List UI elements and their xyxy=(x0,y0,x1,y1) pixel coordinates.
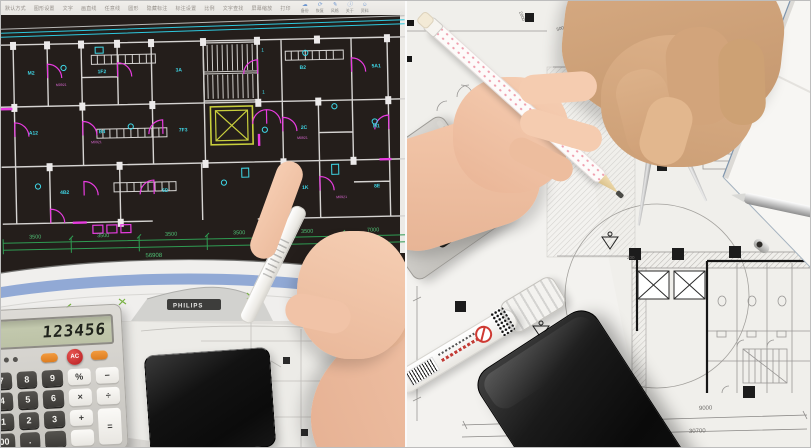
smartphone xyxy=(144,347,277,448)
svg-text:B2: B2 xyxy=(300,65,307,71)
svg-text:3500: 3500 xyxy=(97,233,109,239)
toolbar-icon-label: 关于 xyxy=(346,9,354,13)
drafting-compass xyxy=(407,1,811,448)
svg-text:2C: 2C xyxy=(301,125,308,131)
compass-leg xyxy=(634,102,662,226)
toolbar-item: 画直线 xyxy=(81,5,97,12)
compass-adjust-wheel xyxy=(673,147,686,160)
svg-text:M0921: M0921 xyxy=(336,195,347,199)
svg-text:5A1: 5A1 xyxy=(371,63,381,69)
svg-text:7F3: 7F3 xyxy=(179,127,188,133)
stair-mark: 1 xyxy=(262,90,265,96)
toolbar-item: 默认方式 xyxy=(5,5,26,12)
calc-key: − xyxy=(95,367,119,384)
toolbar-item: 文字查找 xyxy=(223,5,244,12)
photo-composite: 默认方式 图形设置 文字 画直线 任意线 圆形 隐藏标注 标注设置 比例 文字查… xyxy=(0,0,811,448)
toolbar-icon-label: 风格 xyxy=(331,9,339,13)
calculator-display: 123456 xyxy=(42,319,107,341)
toolbar-item: 图形设置 xyxy=(34,5,55,12)
svg-text:1F2: 1F2 xyxy=(98,69,107,75)
calc-key: 4 xyxy=(1,393,13,410)
calc-key: 8 xyxy=(16,371,37,388)
calc-orange-key xyxy=(41,353,58,363)
svg-text:6D: 6D xyxy=(162,188,169,194)
svg-text:3500: 3500 xyxy=(165,232,177,238)
toolbar-item: 标注设置 xyxy=(175,5,196,12)
toolbar-icon-label: 恢复 xyxy=(316,9,324,13)
calculator-keypad: 7 8 9 % − 4 5 6 × ÷ 1 2 3 + = 00 . xyxy=(1,367,122,448)
calc-key: 1 xyxy=(1,413,14,430)
right-photo-blueprints: 5400 9000 30700 2000 5000 200 0 0 1 4 xyxy=(407,1,811,448)
calc-key: . xyxy=(19,432,40,448)
calc-key: 7 xyxy=(1,372,12,389)
calc-orange-key xyxy=(91,350,108,360)
svg-text:3500: 3500 xyxy=(301,229,313,235)
calc-key: 3 xyxy=(44,410,65,427)
monitor-screen: 1 1 xyxy=(1,15,407,321)
svg-text:1K: 1K xyxy=(302,185,309,191)
calc-equals-key: = xyxy=(97,407,122,445)
svg-text:8E: 8E xyxy=(374,183,381,189)
cad-toolbar: 默认方式 图形设置 文字 画直线 任意线 圆形 隐藏标注 标注设置 比例 文字查… xyxy=(1,1,407,15)
svg-text:7000: 7000 xyxy=(367,227,379,233)
toolbar-item: 隐藏标注 xyxy=(147,5,168,12)
calc-key: 9 xyxy=(42,370,63,387)
svg-text:M1: M1 xyxy=(373,123,380,129)
calculator-lcd: 123456 xyxy=(1,314,114,350)
toolbar-item: 圆形 xyxy=(128,5,138,12)
compass-hinge xyxy=(648,95,668,115)
calc-key xyxy=(70,429,94,446)
svg-text:M2: M2 xyxy=(28,71,35,77)
svg-text:A12: A12 xyxy=(29,130,39,136)
calc-key: × xyxy=(68,388,92,405)
toolbar-icon-label: 备份 xyxy=(301,9,309,13)
calc-key: 5 xyxy=(17,391,38,408)
toolbar-item: 任意线 xyxy=(105,5,121,12)
svg-text:M0921: M0921 xyxy=(91,140,102,144)
toolbar-icon-label: 资料 xyxy=(361,9,369,13)
svg-text:M0921: M0921 xyxy=(56,83,67,87)
philips-logo: PHILIPS xyxy=(173,304,203,310)
calc-key xyxy=(45,430,66,447)
calc-key: 00 xyxy=(1,433,15,448)
svg-text:M0921: M0921 xyxy=(297,136,308,140)
calc-key: % xyxy=(67,368,91,385)
calc-small-key xyxy=(13,357,18,362)
calc-key: ÷ xyxy=(96,387,120,404)
svg-text:3500: 3500 xyxy=(233,230,245,236)
photo-divider xyxy=(405,1,407,448)
stair-mark: 1 xyxy=(261,48,264,54)
calc-key: + xyxy=(69,409,93,426)
toolbar-item: 屏幕缩放 xyxy=(252,5,273,12)
calc-ac-key: AC xyxy=(66,349,83,366)
svg-text:4B2: 4B2 xyxy=(60,190,70,196)
calculator: 123456 AC 7 8 9 % − 4 5 6 × ÷ 1 xyxy=(1,303,129,448)
toolbar-item: 比例 xyxy=(204,5,214,12)
toolbar-item: 打印 xyxy=(280,5,290,12)
svg-text:3500: 3500 xyxy=(29,234,41,240)
calc-key: 2 xyxy=(18,411,39,428)
calc-key: 6 xyxy=(43,390,64,407)
left-photo-cad-monitor: 默认方式 图形设置 文字 画直线 任意线 圆形 隐藏标注 标注设置 比例 文字查… xyxy=(1,1,407,448)
svg-text:3A: 3A xyxy=(176,67,183,73)
calc-small-key xyxy=(4,357,9,362)
total-dimension: 56908 xyxy=(145,253,162,259)
toolbar-icon-group: ☁备份 ⟳恢复 ✎风格 ⓘ关于 ☺资料 xyxy=(301,3,369,13)
toolbar-item: 文字 xyxy=(63,5,73,12)
svg-text:B4: B4 xyxy=(99,129,106,135)
